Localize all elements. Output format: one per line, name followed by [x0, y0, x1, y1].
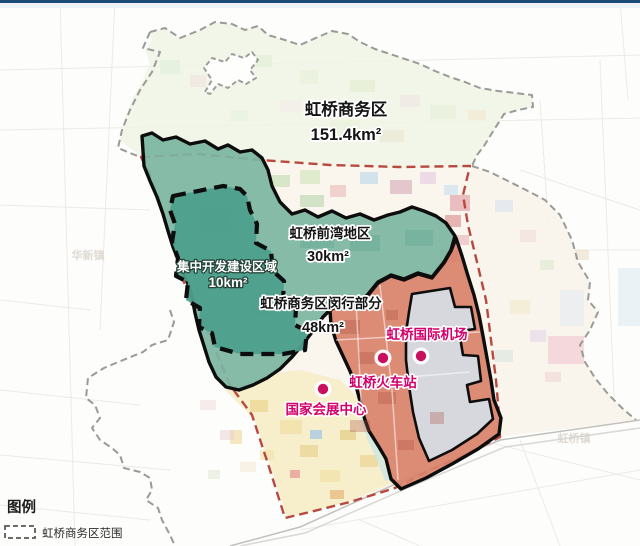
label-exhibition-center: 国家会展中心: [286, 401, 367, 417]
legend-dashed-swatch: [5, 526, 35, 538]
label-railway-station: 虹桥火车站: [349, 374, 417, 390]
label-business-district-area: 151.4km²: [311, 126, 382, 144]
label-minhang-area: 48km²: [302, 320, 344, 336]
town-label-hongqiaozhen: 虹桥镇: [558, 431, 591, 445]
marker-railway-station: [375, 350, 392, 367]
label-airport: 虹桥国际机场: [387, 326, 468, 342]
label-core-dev-area: 10km²: [208, 275, 248, 290]
legend-item-label: 虹桥商务区范围: [42, 526, 123, 540]
marker-exhibition-center: [315, 381, 332, 398]
label-qianwan-name: 虹桥前湾地区: [290, 225, 371, 241]
legend-title: 图例: [7, 498, 36, 516]
hongqiao-map: 华新镇 虹桥镇 虹桥商务区 151.4km² 虹桥前湾地区 30km² 集中开发…: [0, 0, 640, 546]
top-bar-highlight: [0, 3, 640, 8]
label-business-district-name: 虹桥商务区: [305, 99, 388, 119]
marker-airport: [413, 348, 430, 365]
label-qianwan-area: 30km²: [307, 249, 349, 265]
top-bar: [0, 0, 640, 3]
label-minhang-name: 虹桥商务区闵行部分: [260, 295, 382, 311]
map-viewport: 华新镇 虹桥镇 虹桥商务区 151.4km² 虹桥前湾地区 30km² 集中开发…: [0, 0, 640, 546]
label-core-dev-name: 集中开发建设区域: [176, 259, 278, 274]
town-label-huaxin: 华新镇: [72, 248, 105, 262]
